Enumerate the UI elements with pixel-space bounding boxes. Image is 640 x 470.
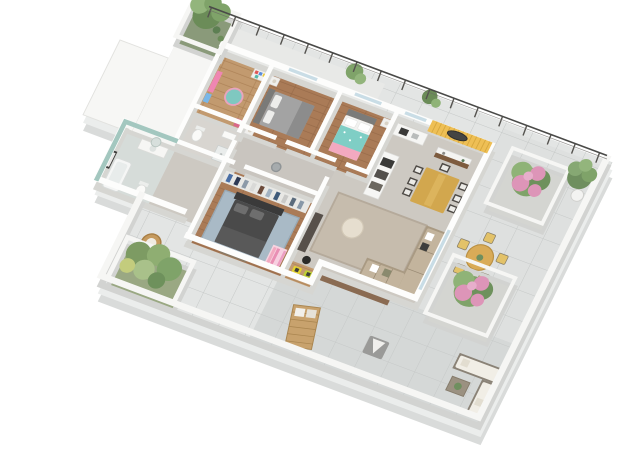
floorplan-render — [0, 0, 640, 470]
lounger-cushion-a — [294, 308, 305, 317]
lounger-cushion-b — [306, 309, 317, 318]
floorplan-svg — [0, 0, 640, 470]
